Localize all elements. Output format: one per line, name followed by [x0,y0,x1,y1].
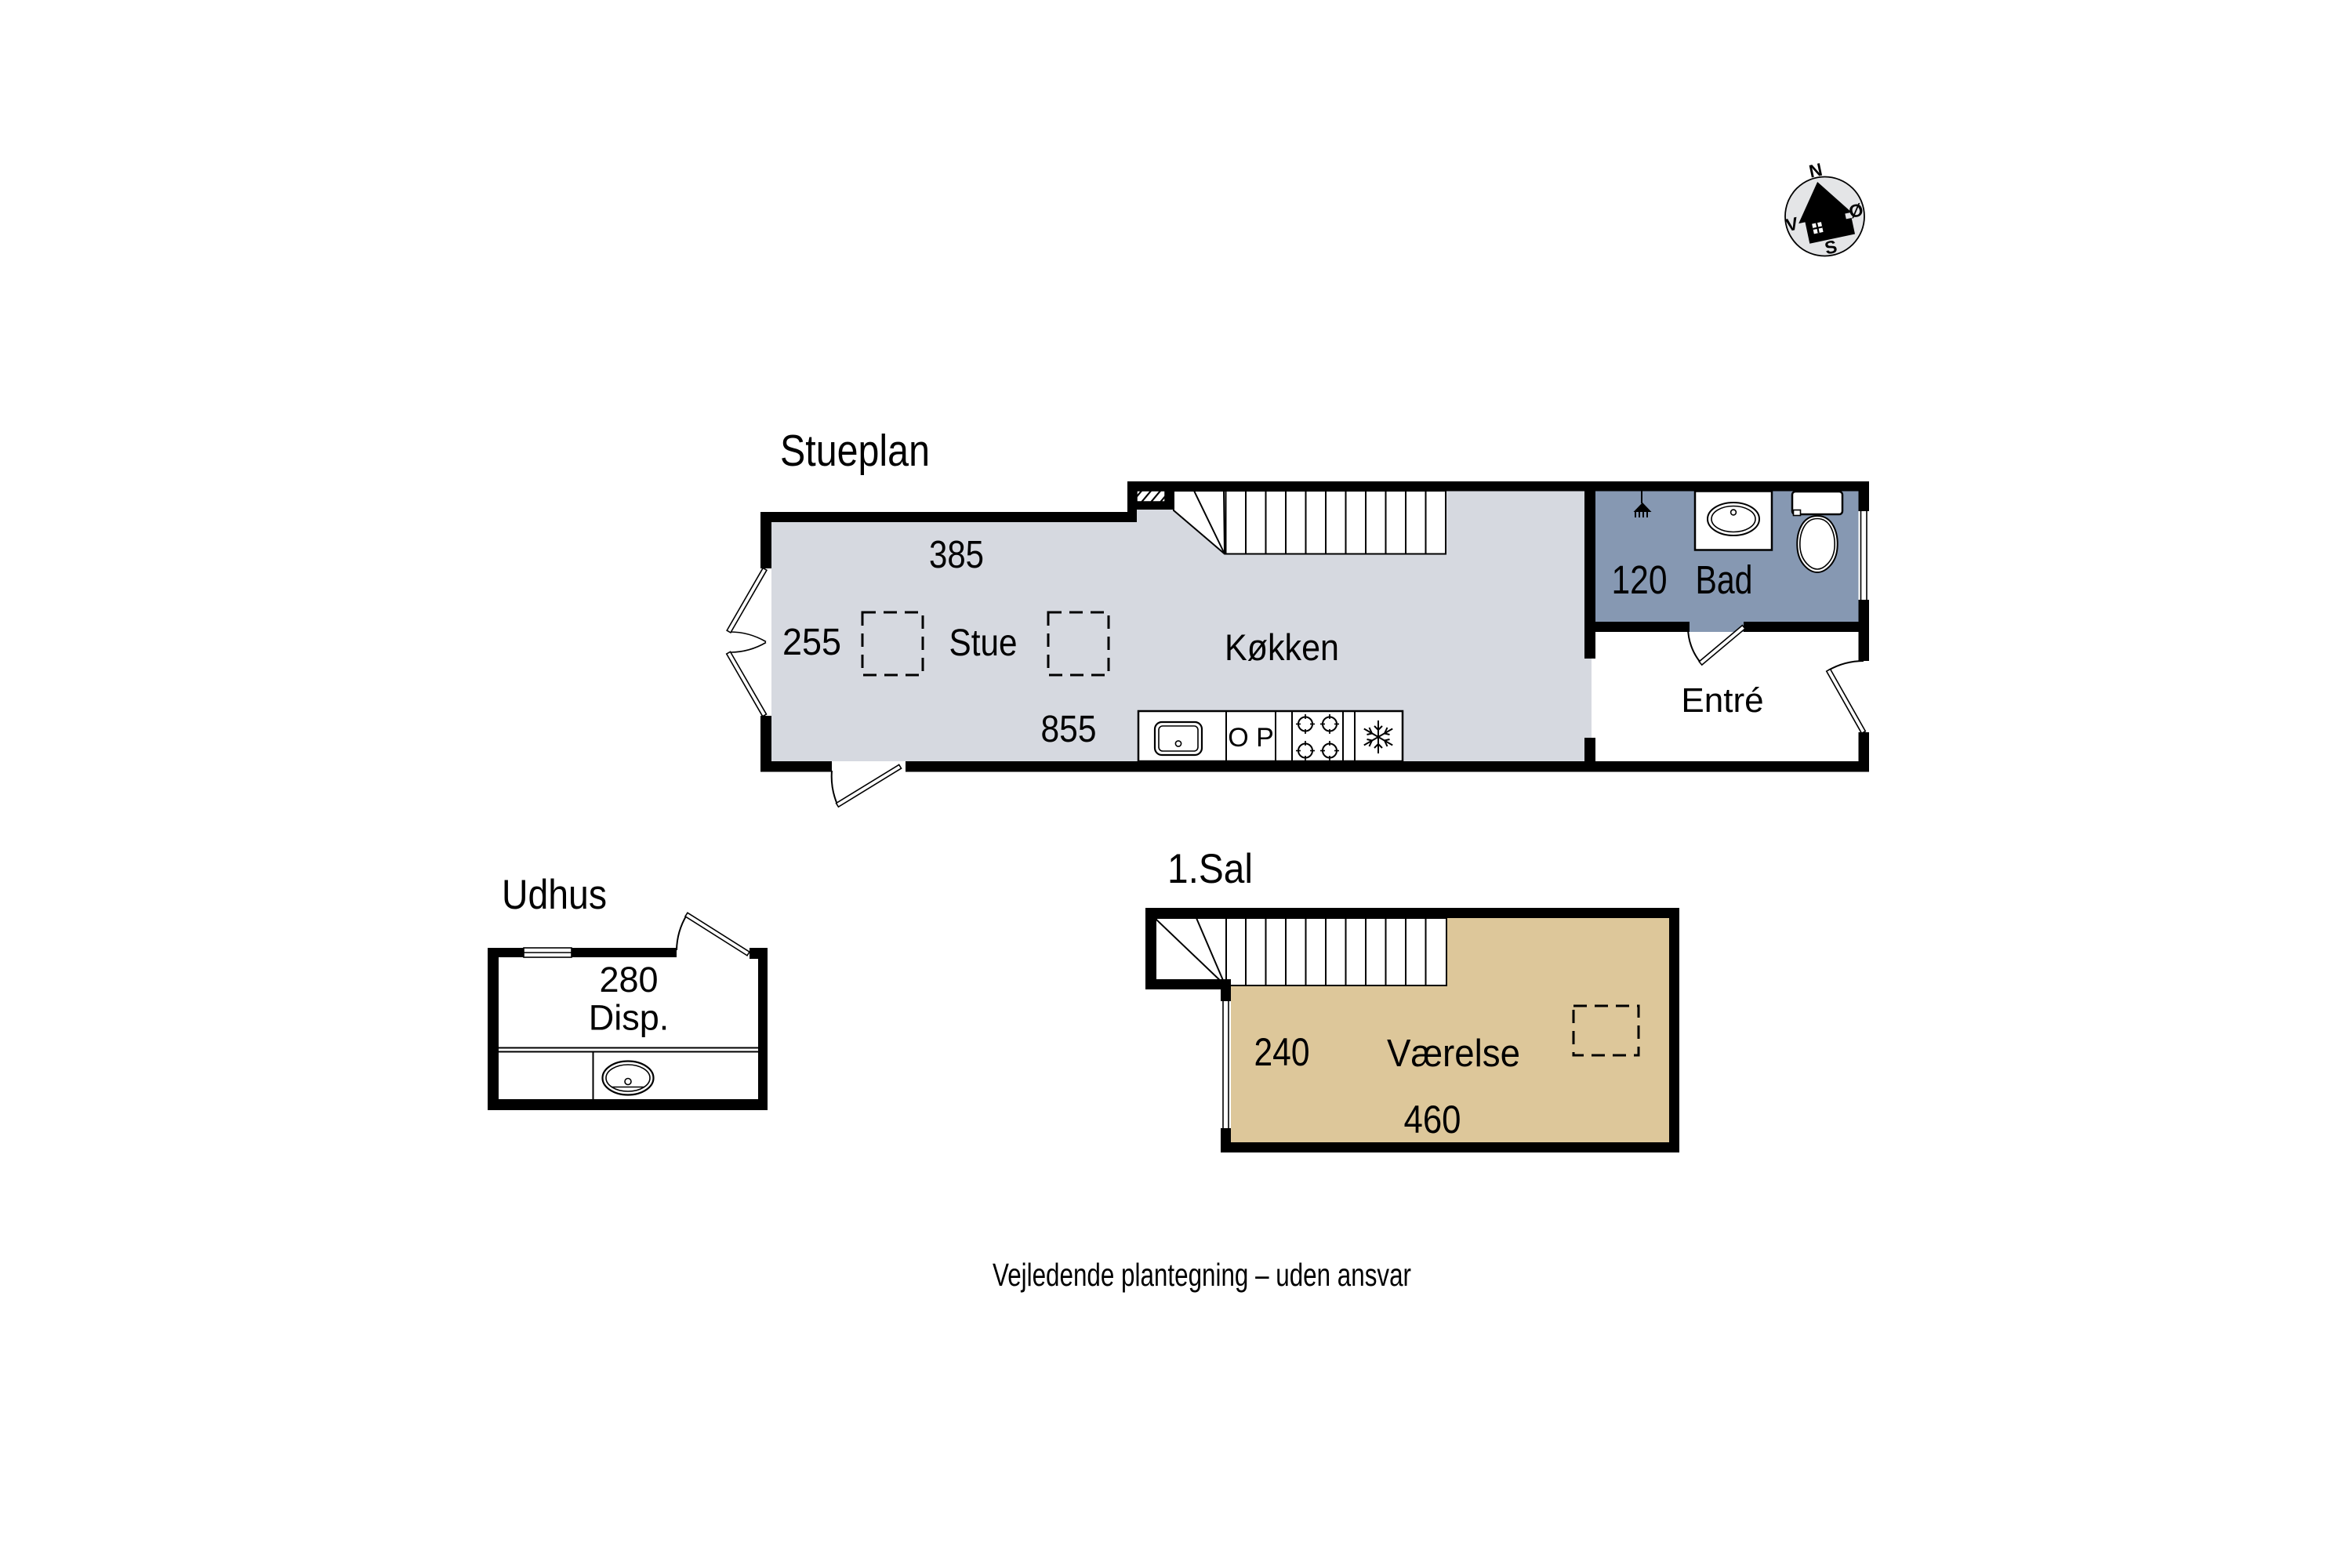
svg-text:Bad: Bad [1696,557,1753,602]
svg-text:255: 255 [782,622,841,663]
svg-text:Udhus: Udhus [502,872,607,918]
svg-text:Disp.: Disp. [589,998,670,1038]
svg-text:240: 240 [1254,1030,1310,1074]
svg-text:120: 120 [1612,557,1668,602]
svg-text:385: 385 [929,534,984,576]
svg-text:Stueplan: Stueplan [780,426,930,476]
svg-text:1.Sal: 1.Sal [1167,846,1253,892]
svg-text:855: 855 [1041,709,1097,750]
svg-text:460: 460 [1404,1098,1461,1142]
svg-text:O P: O P [1228,723,1274,753]
svg-text:280: 280 [599,960,658,1000]
svg-text:Værelse: Værelse [1387,1033,1520,1075]
svg-text:Stue: Stue [949,622,1018,664]
svg-text:Køkken: Køkken [1225,626,1339,668]
svg-text:Vejledende plantegning – uden: Vejledende plantegning – uden ansvar [993,1257,1411,1293]
svg-text:Entré: Entré [1681,681,1763,720]
